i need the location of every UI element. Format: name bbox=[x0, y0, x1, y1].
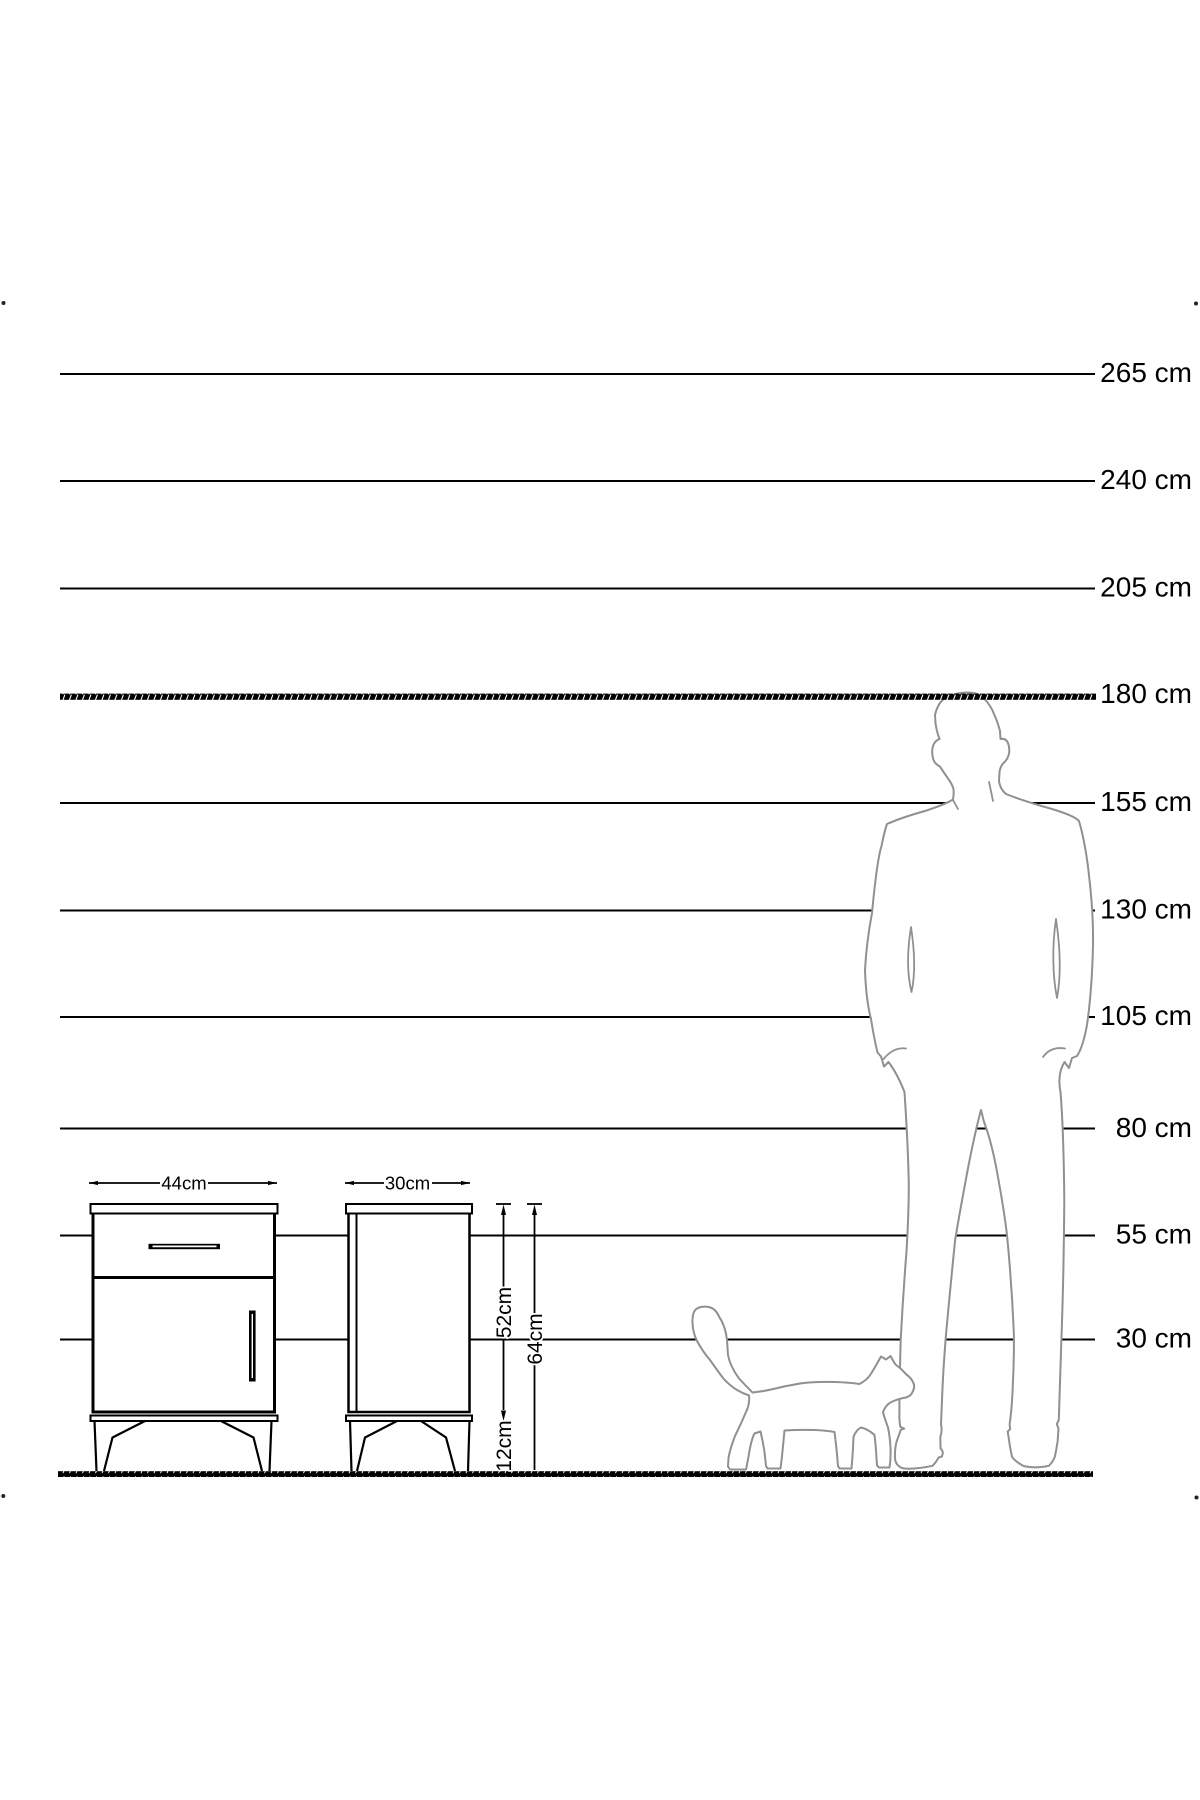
svg-text:240 cm: 240 cm bbox=[1100, 464, 1192, 495]
svg-text:44cm: 44cm bbox=[161, 1173, 206, 1194]
svg-text:265 cm: 265 cm bbox=[1100, 357, 1192, 388]
svg-text:155 cm: 155 cm bbox=[1100, 786, 1192, 817]
svg-text:64cm: 64cm bbox=[524, 1313, 547, 1364]
svg-text:205 cm: 205 cm bbox=[1100, 572, 1192, 603]
svg-text:105 cm: 105 cm bbox=[1100, 1000, 1192, 1031]
svg-text:30cm: 30cm bbox=[385, 1173, 430, 1194]
svg-text:52cm: 52cm bbox=[493, 1287, 516, 1338]
svg-text:80 cm: 80 cm bbox=[1116, 1112, 1192, 1143]
svg-text:180 cm: 180 cm bbox=[1100, 678, 1192, 709]
svg-text:55 cm: 55 cm bbox=[1116, 1219, 1192, 1250]
svg-text:12cm: 12cm bbox=[493, 1420, 516, 1471]
svg-text:30 cm: 30 cm bbox=[1116, 1323, 1192, 1354]
svg-text:130 cm: 130 cm bbox=[1100, 894, 1192, 925]
